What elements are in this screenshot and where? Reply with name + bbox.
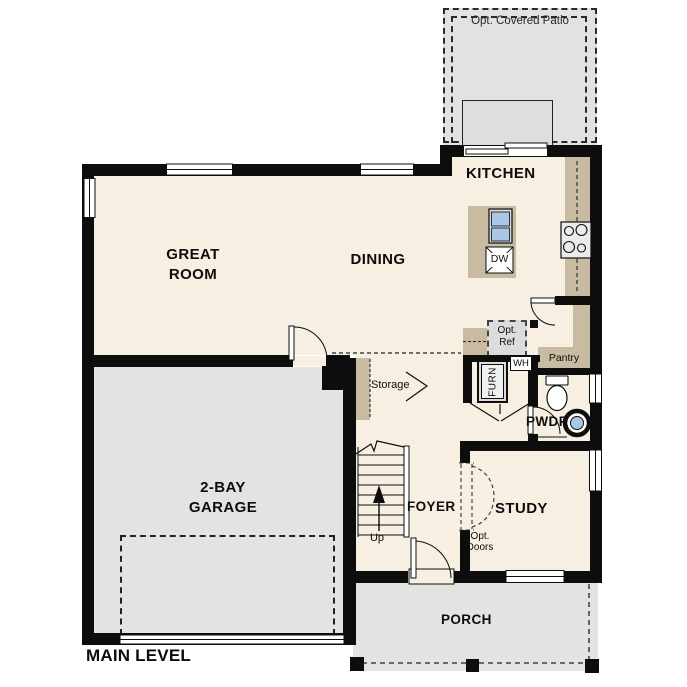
furnace-label: FURN — [487, 367, 498, 397]
dining-label: DINING — [330, 251, 426, 268]
furnace-doors-icon — [470, 403, 530, 421]
garage-line2: GARAGE — [168, 498, 278, 518]
water-heater-box: WH — [510, 356, 532, 371]
sliding-door-icon — [464, 143, 547, 156]
plan-vector-overlay — [0, 0, 687, 687]
dashed-boundary-lines — [332, 161, 597, 663]
opt-ref-line2: Ref — [487, 337, 527, 349]
garage-label: 2-BAY GARAGE — [168, 478, 278, 518]
porch-posts — [350, 657, 599, 673]
furnace-inner: FURN — [481, 364, 504, 399]
porch-label: PORCH — [441, 612, 492, 627]
main-level-title: MAIN LEVEL — [86, 646, 191, 666]
opt-doors-line1: Opt. — [455, 531, 505, 542]
great-room-line1: GREAT — [138, 245, 248, 265]
up-arrow-icon — [373, 485, 385, 503]
opt-doors-line2: Doors — [455, 542, 505, 553]
kitchen-label: KITCHEN — [466, 165, 535, 182]
garage-entry-door-icon — [289, 326, 327, 366]
kitchen-sink-icon — [489, 209, 512, 243]
kitchen-hall-door-icon — [531, 298, 555, 325]
floor-plan: WH FURN DW Opt. Covered Patio KITCHEN GR… — [0, 0, 687, 687]
garage-line1: 2-BAY — [168, 478, 278, 498]
foyer-label: FOYER — [407, 499, 456, 514]
optional-ref-label: Opt. Ref — [487, 325, 527, 349]
staircase — [356, 441, 409, 537]
pantry-label: Pantry — [538, 352, 590, 364]
great-room-label: GREAT ROOM — [138, 245, 248, 285]
opt-ref-line1: Opt. — [487, 325, 527, 337]
optional-doors-label: Opt. Doors — [455, 531, 505, 553]
up-label: Up — [363, 532, 391, 544]
water-heater-label: WH — [513, 358, 529, 369]
patio-label: Opt. Covered Patio — [443, 15, 597, 27]
garage-door-icon — [120, 635, 344, 644]
storage-label: Storage — [371, 379, 410, 391]
stove-icon — [561, 222, 591, 258]
front-door-icon — [409, 538, 454, 584]
optional-doors-icon — [459, 463, 494, 530]
toilet-icon — [546, 376, 568, 411]
powder-label: PWDR — [526, 414, 569, 429]
dishwasher-label: DW — [486, 253, 513, 265]
furnace-box: FURN — [477, 360, 508, 403]
study-label: STUDY — [495, 500, 548, 517]
window-icon — [84, 164, 602, 583]
great-room-line2: ROOM — [138, 265, 248, 285]
